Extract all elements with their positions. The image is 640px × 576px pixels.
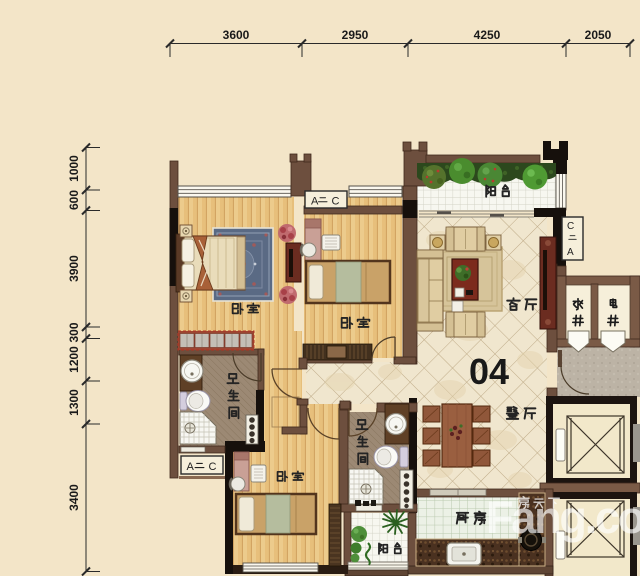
svg-text:1000: 1000 (67, 155, 81, 182)
svg-text:600: 600 (67, 190, 81, 210)
svg-text:4250: 4250 (474, 28, 501, 42)
svg-text:3400: 3400 (67, 484, 81, 511)
svg-text:A: A (567, 247, 574, 258)
svg-text:3900: 3900 (67, 255, 81, 282)
svg-text:A: A (187, 461, 195, 473)
svg-text:1200: 1200 (67, 346, 81, 373)
svg-text:2950: 2950 (342, 28, 369, 42)
svg-text:2050: 2050 (585, 28, 612, 42)
svg-text:C: C (332, 196, 340, 208)
svg-text:04: 04 (469, 351, 509, 392)
svg-text:1300: 1300 (67, 389, 81, 416)
svg-text:A: A (311, 196, 319, 208)
svg-text:C: C (567, 221, 574, 232)
svg-text:300: 300 (67, 322, 81, 342)
svg-text:3600: 3600 (223, 28, 250, 42)
svg-text:C: C (209, 461, 217, 473)
svg-text:Fang.com: Fang.com (486, 492, 640, 543)
